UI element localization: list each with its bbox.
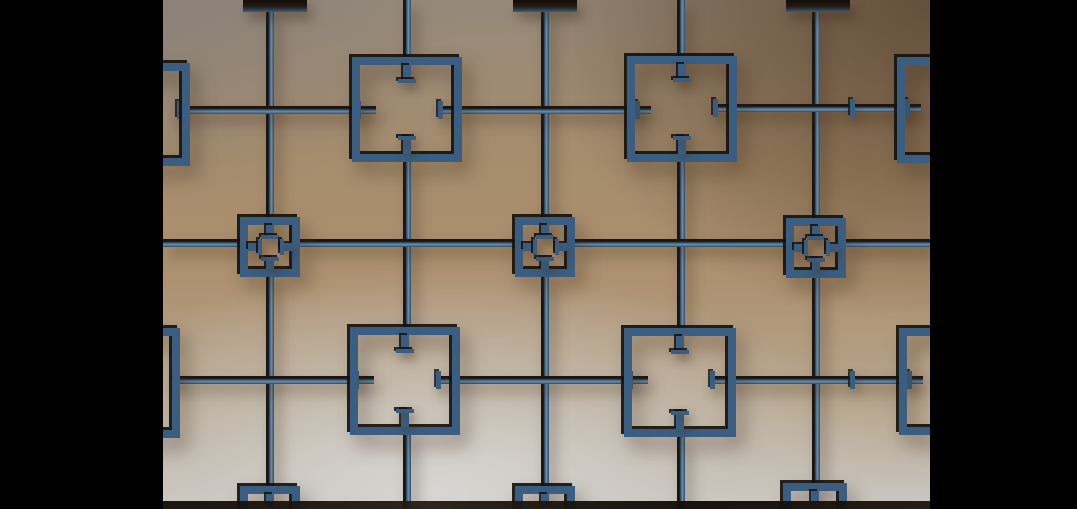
grille-horizontal-bar [713,104,921,112]
large-open-square [163,328,180,438]
grille-horizontal-bar [710,376,923,384]
grille-photo [163,0,930,509]
grille-horizontal-bar [436,376,648,384]
stub-t-end [555,239,559,255]
stub-t-end [258,239,262,255]
large-open-square [899,328,930,435]
letterbox-right-bar [930,0,1077,509]
stub-t-end [673,136,691,140]
grille-horizontal-bar [573,239,788,247]
grille-vertical-bar [677,0,685,58]
grille-joint-tick [850,371,855,389]
grille-horizontal-bar [298,239,517,247]
grille-vertical-bar [266,10,274,219]
stub-t-end [807,258,825,262]
top-cap-square-base [513,0,577,12]
stub-t-end [536,257,554,261]
stub-t-end [671,411,689,415]
top-cap-square-base [786,0,850,12]
stub-t-end [533,239,537,255]
top-cap-square-base [243,0,307,12]
grille-vertical-bar [403,0,411,59]
stub-t-end [807,236,825,240]
grille-horizontal-bar [163,239,242,247]
stub-t-end [280,239,284,255]
grille-vertical-bar [541,10,549,219]
stub-t-end [673,78,691,82]
stub-t-end [804,240,808,256]
grille-horizontal-bar [438,106,651,114]
photo-stage: Photograph of a patinated blue wrought-i… [0,0,1077,509]
stub-t-end [396,409,414,413]
letterbox-left-bar [0,0,163,509]
grille-vertical-bar [677,436,685,509]
stub-t-end [261,235,279,239]
stub-t-end [536,235,554,239]
grille-horizontal-bar [844,239,930,247]
bottom-shadow-band [163,501,930,509]
stub-t-end [396,349,414,353]
stub-t-end [261,257,279,261]
grille-horizontal-bar [171,376,374,384]
grille-horizontal-bar [177,106,376,114]
stub-t-end [671,350,689,354]
stub-t-end [398,79,416,83]
large-open-square [897,57,930,163]
grille-vertical-bar [403,433,411,509]
stub-t-end [398,136,416,140]
grille-vertical-bar [812,10,820,220]
large-open-square [163,63,190,166]
stub-t-end [826,240,830,256]
grille-joint-tick [850,99,855,117]
